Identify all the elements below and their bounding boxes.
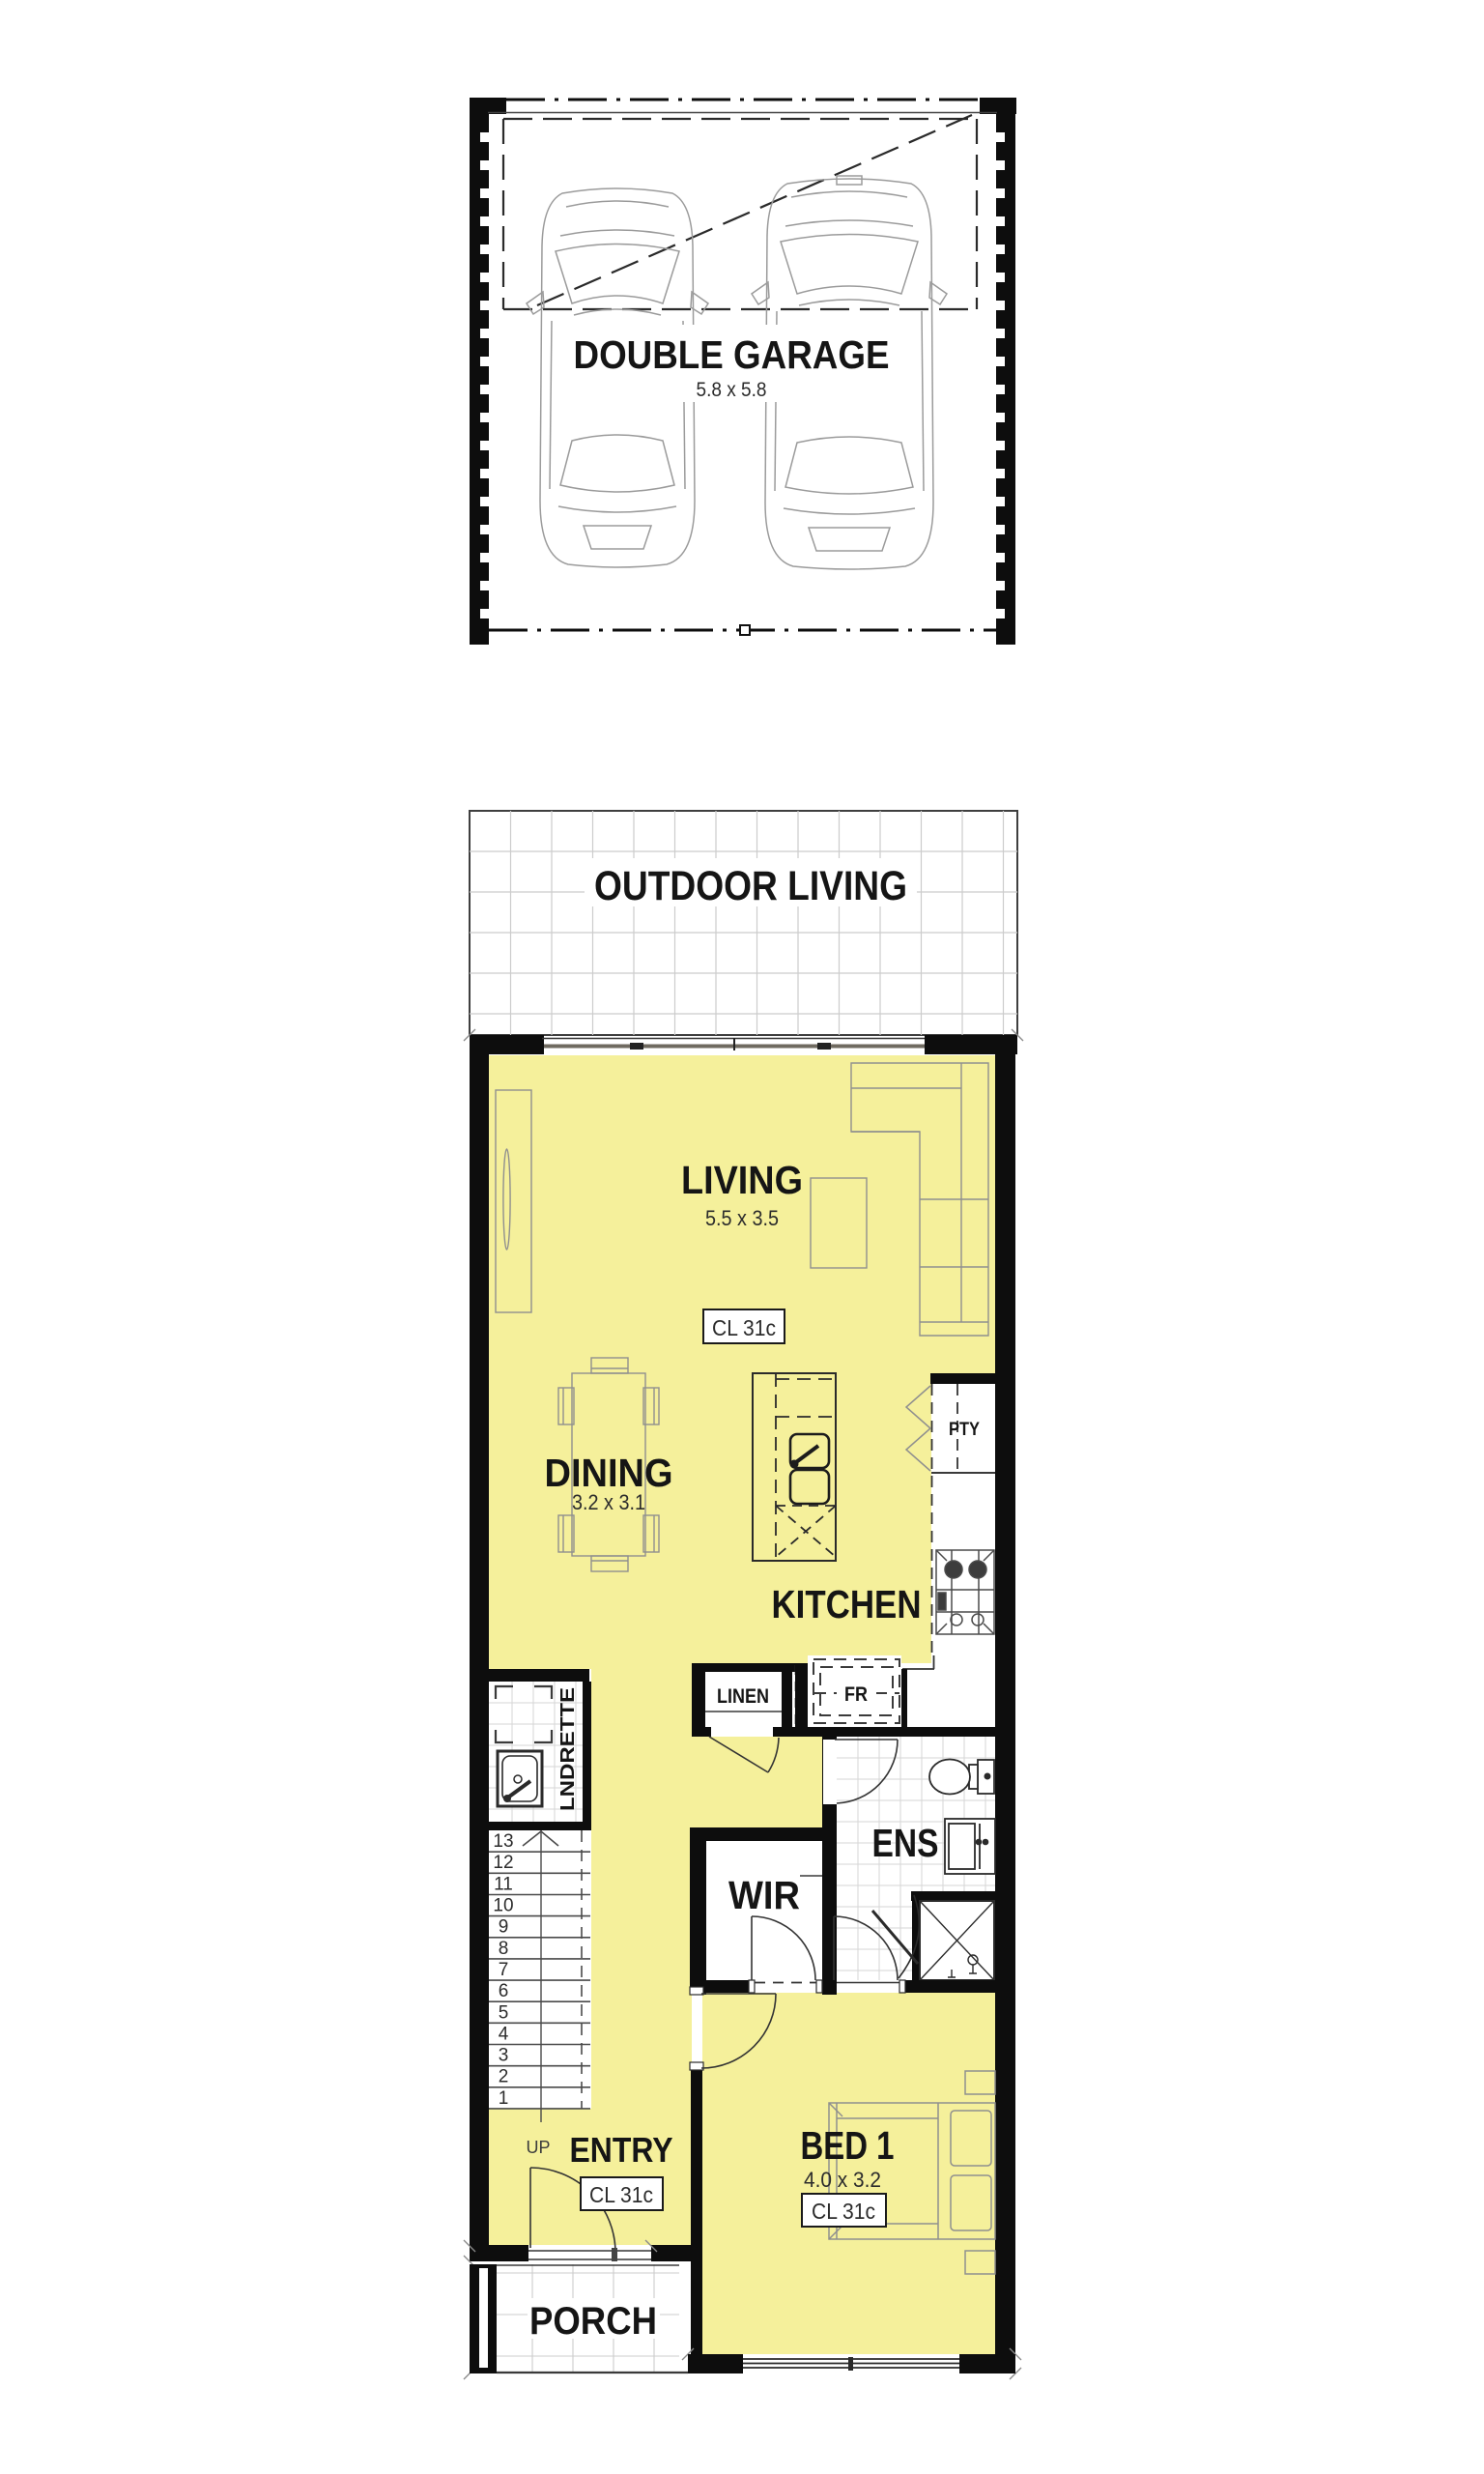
- svg-text:2: 2: [499, 2067, 509, 2087]
- svg-text:7: 7: [499, 1960, 509, 1980]
- svg-text:UP: UP: [526, 2138, 550, 2157]
- svg-text:LIVING: LIVING: [681, 1158, 803, 1202]
- svg-text:5.5 x 3.5: 5.5 x 3.5: [705, 1206, 779, 1230]
- svg-text:FR: FR: [844, 1683, 868, 1706]
- svg-text:PTY: PTY: [949, 1420, 980, 1440]
- svg-text:OUTDOOR LIVING: OUTDOOR LIVING: [594, 863, 907, 909]
- svg-text:4.0 x 3.2: 4.0 x 3.2: [804, 2168, 881, 2192]
- svg-text:CL 31c: CL 31c: [589, 2182, 653, 2207]
- svg-text:ENS: ENS: [872, 1821, 939, 1865]
- svg-text:1: 1: [499, 2088, 509, 2109]
- svg-text:LINEN: LINEN: [717, 1685, 769, 1708]
- svg-text:4: 4: [499, 2024, 509, 2044]
- svg-text:LNDRETTE: LNDRETTE: [557, 1687, 579, 1811]
- svg-text:13: 13: [493, 1831, 513, 1852]
- svg-text:DINING: DINING: [545, 1451, 673, 1495]
- svg-text:ENTRY: ENTRY: [570, 2130, 673, 2170]
- svg-text:PORCH: PORCH: [529, 2300, 657, 2343]
- svg-text:3: 3: [499, 2046, 509, 2066]
- svg-text:DOUBLE GARAGE: DOUBLE GARAGE: [574, 332, 890, 377]
- svg-text:6: 6: [499, 1981, 509, 2001]
- svg-text:11: 11: [494, 1874, 513, 1894]
- svg-text:5: 5: [499, 2002, 509, 2023]
- svg-text:8: 8: [499, 1939, 509, 1959]
- svg-text:12: 12: [493, 1853, 513, 1873]
- svg-text:KITCHEN: KITCHEN: [772, 1582, 922, 1626]
- svg-text:BED 1: BED 1: [801, 2123, 895, 2168]
- svg-text:5.8 x 5.8: 5.8 x 5.8: [697, 379, 767, 401]
- svg-text:9: 9: [499, 1917, 509, 1938]
- svg-text:CL 31c: CL 31c: [812, 2199, 875, 2224]
- svg-text:10: 10: [493, 1896, 513, 1916]
- svg-text:3.2 x 3.1: 3.2 x 3.1: [572, 1490, 645, 1514]
- svg-text:WIR: WIR: [728, 1873, 800, 1917]
- svg-text:CL 31c: CL 31c: [712, 1315, 776, 1340]
